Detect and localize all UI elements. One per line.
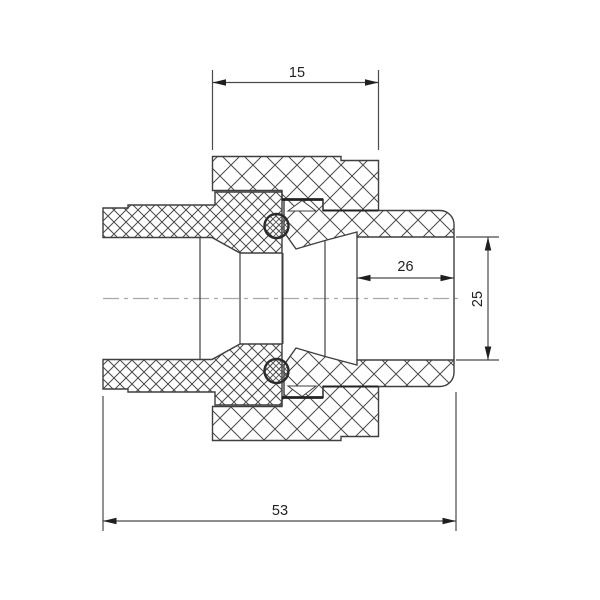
drawing-background xyxy=(0,0,600,600)
dimension-text-25: 25 xyxy=(470,291,486,307)
technical-drawing-canvas: 15 26 25 53 xyxy=(0,0,600,600)
o-ring-bottom xyxy=(265,359,289,383)
dimension-text-15: 15 xyxy=(289,65,305,81)
o-ring-top xyxy=(265,214,289,238)
dimension-text-53: 53 xyxy=(272,503,288,519)
union-fitting-drawing: 15 26 25 53 xyxy=(0,0,600,600)
dimension-text-26: 26 xyxy=(397,259,413,275)
